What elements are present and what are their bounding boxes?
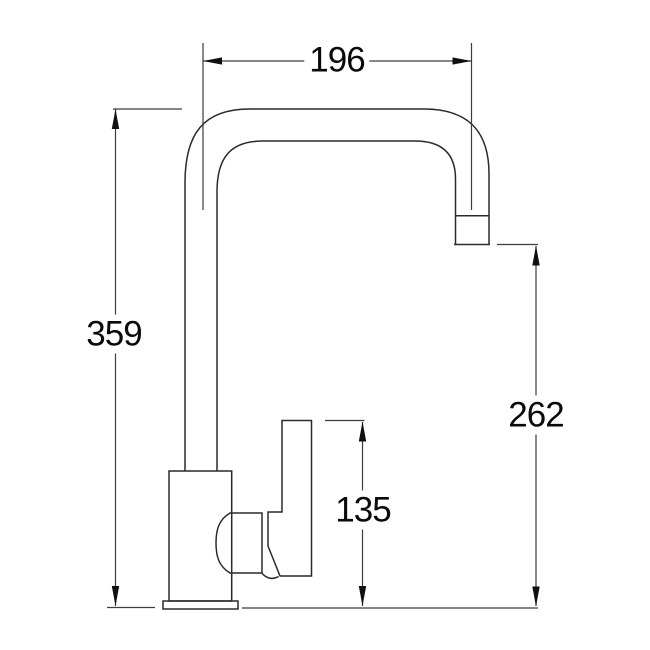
arrowhead-196-left: [203, 57, 222, 64]
dimension-label-outlet-height: 262: [503, 396, 568, 435]
cartridge-housing: [216, 513, 262, 573]
handle-lever: [268, 421, 312, 577]
dimension-label-spout-reach: 196: [304, 41, 369, 80]
ball-joint-arc: [262, 574, 279, 579]
arrowhead-262-up: [532, 246, 539, 266]
spout-outer-profile: [185, 109, 489, 471]
arrowhead-135-up: [359, 422, 366, 442]
dimension-label-handle-height: 135: [330, 491, 395, 530]
arrowhead-262-down: [532, 587, 539, 607]
dimension-label-overall-height: 359: [81, 315, 146, 354]
base-plate: [163, 601, 238, 609]
arrowheads-group: [112, 57, 540, 606]
faucet-outline-group: [163, 109, 490, 609]
arrowhead-196-right: [453, 57, 472, 64]
arrowhead-359-down: [112, 586, 119, 606]
faucet-body: [169, 471, 232, 601]
spout-inner-profile: [217, 141, 456, 471]
technical-drawing-canvas: 196 359 262 135: [0, 0, 650, 650]
arrowhead-359-up: [112, 109, 119, 129]
arrowhead-135-down: [359, 586, 366, 606]
dimension-lines-group: [107, 43, 538, 608]
